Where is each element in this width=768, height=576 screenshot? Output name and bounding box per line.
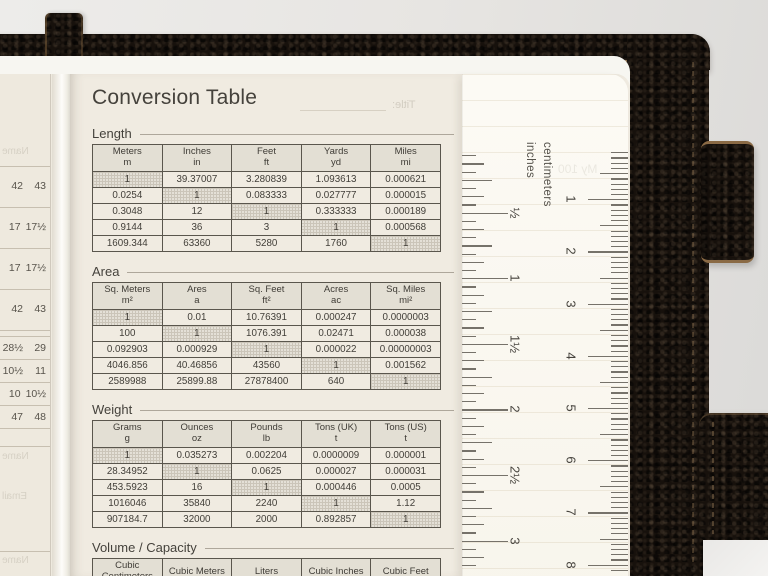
ruler-cm-tick xyxy=(611,377,628,378)
ruler-cm-tick xyxy=(611,450,628,451)
conversion-table: MetersmInchesinFeetftYardsydMilesmi139.3… xyxy=(92,144,441,252)
ruler-cm-tick xyxy=(611,392,628,393)
table-cell: 3 xyxy=(232,220,302,236)
table-cell: 1 xyxy=(371,512,441,528)
table-header-row: GramsgOuncesozPoundslbTons (UK)tTons (US… xyxy=(93,421,441,448)
table-cell: 1 xyxy=(93,448,163,464)
table-cell: 1 xyxy=(93,172,163,188)
ruler-cm-tick xyxy=(611,366,628,367)
table-cell: 100 xyxy=(93,326,163,342)
table-cell: 0.892857 xyxy=(301,512,371,528)
ruler-cm-tick xyxy=(588,512,628,513)
table-body: 10.0110.763910.0002470.000000310011076.3… xyxy=(93,310,441,390)
table-row: 1609.34463360528017601 xyxy=(93,236,441,252)
table-cell: 0.3048 xyxy=(93,204,163,220)
cover-right-panel xyxy=(627,34,709,576)
table-cell: 0.0005 xyxy=(371,480,441,496)
table-cell: 1 xyxy=(301,220,371,236)
left-page-size-row: 10½11 xyxy=(0,365,46,377)
ruler-cm-tick xyxy=(611,231,628,232)
ruler-inch-tick xyxy=(462,418,476,419)
table-row: 0.025410.0833330.0277770.000015 xyxy=(93,188,441,204)
ruler-cm-tick xyxy=(611,465,628,466)
column-header: Sq. Feetft² xyxy=(232,283,302,310)
size-value: 11 xyxy=(28,365,46,377)
ruler-cm-tick xyxy=(611,204,628,205)
ruler-inch-tick xyxy=(462,270,476,271)
ruler-cm-number: 3 xyxy=(564,300,579,307)
ruler-cm-tick xyxy=(611,288,628,289)
ruler-inch-number: 1½ xyxy=(508,335,523,353)
ruler-cm-tick xyxy=(611,215,628,216)
ruler-cm-tick xyxy=(611,293,628,294)
table-cell: 2589988 xyxy=(93,374,163,390)
left-page-rule-line xyxy=(0,446,50,447)
column-unit: g xyxy=(93,434,162,445)
table-cell: 0.000621 xyxy=(371,172,441,188)
ruler-inch-tick xyxy=(462,459,484,460)
table-row: 0.0929030.00092910.0000220.00000003 xyxy=(93,342,441,358)
left-page-size-row: 4243 xyxy=(0,180,46,192)
left-page-bleed-text: Name xyxy=(2,555,58,566)
conversion-table: GramsgOuncesozPoundslbTons (UK)tTons (US… xyxy=(92,420,441,528)
table-cell: 0.035273 xyxy=(162,448,232,464)
table-cell: 1 xyxy=(162,188,232,204)
ruler-inch-tick xyxy=(462,475,508,476)
table-cell: 1 xyxy=(371,236,441,252)
table-cell: 1 xyxy=(232,480,302,496)
column-header: Gramsg xyxy=(93,421,163,448)
left-page-rule-line xyxy=(0,359,50,360)
table-cell: 0.000015 xyxy=(371,188,441,204)
table-row: 101604635840224011.12 xyxy=(93,496,441,512)
table-cell: 1760 xyxy=(301,236,371,252)
ruler-cm-tick xyxy=(611,246,628,247)
ruler-inch-tick xyxy=(462,327,484,328)
table-cell: 1 xyxy=(301,496,371,512)
ruler-cm-tick xyxy=(611,554,628,555)
ruler-centimeters-label: centimeters xyxy=(541,142,553,207)
ruler-cm-tick xyxy=(611,570,628,571)
table-cell: 0.000189 xyxy=(371,204,441,220)
ruler-inch-tick xyxy=(462,524,484,525)
ruler-cm-tick xyxy=(611,163,628,164)
ruler-cm-tick xyxy=(611,236,628,237)
ruler-cm-tick xyxy=(611,398,628,399)
left-page-size-row: 4243 xyxy=(0,303,46,315)
table-cell: 28.34952 xyxy=(93,464,163,480)
table-cell: 1 xyxy=(301,358,371,374)
ruler-cm-tick xyxy=(611,272,628,273)
column-unit: t xyxy=(302,434,371,445)
table-cell: 0.0625 xyxy=(232,464,302,480)
ruler-inch-tick xyxy=(462,237,476,238)
size-value: 10½ xyxy=(3,365,23,377)
column-header: Ouncesoz xyxy=(162,421,232,448)
ruler-inch-tick xyxy=(462,483,476,484)
size-value: 17½ xyxy=(26,221,46,233)
ruler-cm-tick xyxy=(611,267,628,268)
table-row: 10.0352730.0022040.00000090.000001 xyxy=(93,448,441,464)
ruler-cm-tick xyxy=(611,194,628,195)
table-row: 4046.85640.468564356010.001562 xyxy=(93,358,441,374)
column-unit: ac xyxy=(302,296,371,307)
strap-stitching xyxy=(712,422,714,534)
column-header: Cubic Centimeters xyxy=(93,559,163,576)
table-cell: 1 xyxy=(93,310,163,326)
ruler-cm-tick xyxy=(611,418,628,419)
table-cell: 32000 xyxy=(162,512,232,528)
column-header: Acresac xyxy=(301,283,371,310)
ruler-inches-label: inches xyxy=(524,142,536,178)
column-header: Yardsyd xyxy=(301,145,371,172)
table-header-row: Cubic CentimetersCubic MetersLitersCubic… xyxy=(93,559,441,576)
section-length: LengthMetersmInchesinFeetftYardsydMilesm… xyxy=(92,126,454,252)
left-page-bleed-text: Name xyxy=(2,146,58,157)
table-row: 907184.73200020000.8928571 xyxy=(93,512,441,528)
ruler-cm-tick xyxy=(611,549,628,550)
table-cell: 4046.856 xyxy=(93,358,163,374)
table-row: 28.3495210.06250.0000270.000031 xyxy=(93,464,441,480)
section-header: Area xyxy=(92,264,454,279)
ruler-cm-tick xyxy=(611,559,628,560)
table-cell: 453.5923 xyxy=(93,480,163,496)
ruler-cm-tick xyxy=(611,309,628,310)
size-value: 42 xyxy=(3,180,23,192)
table-cell: 0.000247 xyxy=(301,310,371,326)
table-cell: 640 xyxy=(301,374,371,390)
table-cell: 10.76391 xyxy=(232,310,302,326)
ruler-inch-tick xyxy=(462,434,476,435)
conversion-table: Sq. Metersm²AresaSq. Feetft²AcresacSq. M… xyxy=(92,282,441,390)
ruler-cm-tick xyxy=(588,356,628,357)
column-unit: m xyxy=(93,158,162,169)
ruler-inch-tick xyxy=(462,204,476,205)
column-header: Feetft xyxy=(232,145,302,172)
ruler-cm-tick xyxy=(611,220,628,221)
column-header: Metersm xyxy=(93,145,163,172)
left-page-bleed-text: Email xyxy=(2,491,58,502)
left-page-size-row: 4748 xyxy=(0,411,46,423)
cover-strap-lower xyxy=(699,413,768,543)
ruler-cm-tick xyxy=(611,518,628,519)
table-cell: 36 xyxy=(162,220,232,236)
ruler-cm-number: 7 xyxy=(564,509,579,516)
column-name: Cubic Meters xyxy=(163,567,232,576)
ruler-cm-tick xyxy=(611,455,628,456)
ruler-cm-tick xyxy=(611,184,628,185)
size-value: 17½ xyxy=(26,262,46,274)
ruler-inch-number: 2 xyxy=(508,406,523,413)
bleed-page-heading: My 100 xyxy=(558,162,597,176)
ruler-inch-tick xyxy=(462,377,492,378)
ruler-inch-tick xyxy=(462,565,476,566)
ruler-inch-tick xyxy=(462,180,492,181)
ruler-inch-tick xyxy=(462,368,476,369)
left-page-rule-line xyxy=(0,330,50,331)
ruler-cm-tick xyxy=(611,210,628,211)
table-cell: 0.000031 xyxy=(371,464,441,480)
ruler-cm-tick xyxy=(611,471,628,472)
table-cell: 0.000022 xyxy=(301,342,371,358)
ruler-inch-tick xyxy=(462,516,476,517)
table-cell: 1 xyxy=(232,342,302,358)
column-unit: oz xyxy=(163,434,232,445)
size-value: 10½ xyxy=(26,388,46,400)
left-page-rule-line xyxy=(0,428,50,429)
ruler-inch-tick xyxy=(462,188,476,189)
left-page-bleed-text: Name xyxy=(2,451,58,462)
table-cell: 5280 xyxy=(232,236,302,252)
section-weight: WeightGramsgOuncesozPoundslbTons (UK)tTo… xyxy=(92,402,454,528)
ruler-inch-tick xyxy=(462,491,484,492)
table-cell: 0.0000003 xyxy=(371,310,441,326)
ruler-inch-number: 3 xyxy=(508,537,523,544)
ruler-cm-tick xyxy=(611,507,628,508)
table-row: 0.914436310.000568 xyxy=(93,220,441,236)
left-page-rule-line xyxy=(0,289,50,290)
sections: LengthMetersmInchesinFeetftYardsydMilesm… xyxy=(92,126,454,576)
ruler-cm-tick xyxy=(611,178,628,179)
ruler-inch-tick xyxy=(462,163,484,164)
ruler-cm-tick xyxy=(588,408,628,409)
table-cell: 0.000446 xyxy=(301,480,371,496)
section-rule-line xyxy=(127,272,454,273)
ruler-cm-tick xyxy=(600,225,628,226)
ruler-cm-tick xyxy=(611,340,628,341)
table-cell: 0.092903 xyxy=(93,342,163,358)
column-header: Sq. Metersm² xyxy=(93,283,163,310)
ruler-inch-tick xyxy=(462,442,492,443)
section-header: Weight xyxy=(92,402,454,417)
column-unit: yd xyxy=(302,158,371,169)
table-cell: 0.000929 xyxy=(162,342,232,358)
column-unit: mi² xyxy=(371,296,440,307)
section-rule-line xyxy=(140,410,454,411)
background-corner xyxy=(703,540,768,576)
ruler-cm-tick xyxy=(600,173,628,174)
column-header: Inchesin xyxy=(162,145,232,172)
ruler-cm-tick xyxy=(611,424,628,425)
left-page-size-row: 28½29 xyxy=(0,342,46,354)
ruler-cm-tick xyxy=(611,241,628,242)
pen-loop xyxy=(701,141,754,263)
left-page-rule-line xyxy=(0,405,50,406)
ruler-cm-tick xyxy=(600,434,628,435)
ruler-cm-number: 8 xyxy=(564,561,579,568)
size-value: 10 xyxy=(1,388,21,400)
left-page-rule-line xyxy=(0,382,50,383)
ruler-cm-tick xyxy=(588,565,628,566)
section-rule-line xyxy=(205,548,454,549)
table-cell: 0.9144 xyxy=(93,220,163,236)
table-row: 139.370073.2808391.0936130.000621 xyxy=(93,172,441,188)
ruler-inch-tick xyxy=(462,401,476,402)
table-row: 10.0110.763910.0002470.0000003 xyxy=(93,310,441,326)
ruler-inch-tick xyxy=(462,426,484,427)
ruler-inch-tick xyxy=(462,229,484,230)
column-header: Sq. Milesmi² xyxy=(371,283,441,310)
ruler-cm-tick xyxy=(600,278,628,279)
bleed-title-rule xyxy=(300,110,386,111)
ruler-cm-number: 6 xyxy=(564,457,579,464)
table-body: 139.370073.2808391.0936130.0006210.02541… xyxy=(93,172,441,252)
ruler-cm-number: 1 xyxy=(564,196,579,203)
ruler-cm-tick xyxy=(611,476,628,477)
table-head: Cubic CentimetersCubic MetersLitersCubic… xyxy=(93,559,441,576)
ruler-inch-number: 1 xyxy=(508,275,523,282)
ruler-inch-tick xyxy=(462,262,484,263)
cover-stitching-right xyxy=(692,62,694,562)
ruler-inch-tick xyxy=(462,541,508,542)
table-cell: 0.000038 xyxy=(371,326,441,342)
ruler-cm-tick xyxy=(611,528,628,529)
left-page-rule-line xyxy=(0,336,50,337)
section-label: Area xyxy=(92,264,119,279)
table-cell: 16 xyxy=(162,480,232,496)
table-cell: 0.001562 xyxy=(371,358,441,374)
ruler-cm-tick xyxy=(611,413,628,414)
ruler-cm-tick xyxy=(611,387,628,388)
ruler-cm-tick xyxy=(611,335,628,336)
ruler-inch-tick xyxy=(462,286,476,287)
ruler-inch-tick xyxy=(462,508,492,509)
ruler-cm-tick xyxy=(611,502,628,503)
table-cell: 1 xyxy=(162,464,232,480)
table-cell: 27878400 xyxy=(232,374,302,390)
ruler-inch-tick xyxy=(462,549,476,550)
table-cell: 0.0000009 xyxy=(301,448,371,464)
table-cell: 1.12 xyxy=(371,496,441,512)
ruler-cm-tick xyxy=(611,257,628,258)
ruler-inch-tick xyxy=(462,303,476,304)
table-row: 10011076.3910.024710.000038 xyxy=(93,326,441,342)
table-cell: 43560 xyxy=(232,358,302,374)
table-cell: 2240 xyxy=(232,496,302,512)
table-cell: 1 xyxy=(162,326,232,342)
ruler-cm-tick xyxy=(611,361,628,362)
ruler-inch-tick xyxy=(462,557,484,558)
section-volume-capacity: Volume / CapacityCubic CentimetersCubic … xyxy=(92,540,454,576)
ruler-inch-tick xyxy=(462,336,476,337)
size-value: 17 xyxy=(1,262,21,274)
table-row: 258998825899.88278784006401 xyxy=(93,374,441,390)
ruler-inch-tick xyxy=(462,155,476,156)
ruler-cm-tick xyxy=(611,371,628,372)
ruler-inch-tick xyxy=(462,467,476,468)
ruler-cm-tick xyxy=(611,544,628,545)
section-label: Weight xyxy=(92,402,132,417)
ruler-inch-tick xyxy=(462,344,508,345)
column-name: Cubic Inches xyxy=(302,567,371,576)
column-unit: lb xyxy=(232,434,301,445)
ruler-inch-tick xyxy=(462,254,476,255)
ruler-inch-tick xyxy=(462,278,508,279)
ruler-inch-tick xyxy=(462,409,508,410)
table-cell: 0.0254 xyxy=(93,188,163,204)
table-cell: 1076.391 xyxy=(232,326,302,342)
table-cell: 3.280839 xyxy=(232,172,302,188)
section-header: Volume / Capacity xyxy=(92,540,454,555)
column-header: Cubic Inches xyxy=(301,559,371,576)
table-cell: 25899.88 xyxy=(162,374,232,390)
table-cell: 0.002204 xyxy=(232,448,302,464)
left-page-size-row: 1717½ xyxy=(0,221,46,233)
left-page-rule-line xyxy=(0,248,50,249)
size-value: 47 xyxy=(3,411,23,423)
ruler-cm-tick xyxy=(588,304,628,305)
ruler-cm-tick xyxy=(588,460,628,461)
ruler-cm-tick xyxy=(611,403,628,404)
table-cell: 0.02471 xyxy=(301,326,371,342)
size-value: 28½ xyxy=(3,342,23,354)
ruler-cm-tick xyxy=(611,189,628,190)
table-cell: 35840 xyxy=(162,496,232,512)
column-unit: ft xyxy=(232,158,301,169)
table-cell: 0.027777 xyxy=(301,188,371,204)
ruler-cm-tick xyxy=(611,533,628,534)
left-page-rule-line xyxy=(0,207,50,208)
ruler-cm-tick xyxy=(600,486,628,487)
ruler-inch-tick xyxy=(462,213,508,214)
table-cell: 40.46856 xyxy=(162,358,232,374)
table-cell: 1 xyxy=(371,374,441,390)
section-area: AreaSq. Metersm²AresaSq. Feetft²AcresacS… xyxy=(92,264,454,390)
planner-photo: 42431717½1717½424328½2910½111010½4748 Na… xyxy=(0,0,768,576)
column-header: Poundslb xyxy=(232,421,302,448)
ruler-cm-tick xyxy=(611,262,628,263)
ruler-cm-tick xyxy=(611,481,628,482)
ruler: inches centimeters My 100 ½11½22½3123456… xyxy=(462,74,628,576)
table-cell: 0.333333 xyxy=(301,204,371,220)
column-name: Cubic Feet xyxy=(371,567,440,576)
ruler-inch-tick xyxy=(462,352,476,353)
ruler-cm-tick xyxy=(611,324,628,325)
table-row: 0.30481210.3333330.000189 xyxy=(93,204,441,220)
bleed-title-text: Title: xyxy=(392,99,415,111)
ruler-inch-tick xyxy=(462,295,484,296)
table-header-row: MetersmInchesinFeetftYardsydMilesmi xyxy=(93,145,441,172)
ruler-cm-tick xyxy=(611,439,628,440)
column-header: Liters xyxy=(232,559,302,576)
ruler-cm-tick xyxy=(611,168,628,169)
ruler-cm-tick xyxy=(600,382,628,383)
ruler-cm-tick xyxy=(611,319,628,320)
ruler-cm-tick xyxy=(611,157,628,158)
left-page-rule-line xyxy=(0,551,50,552)
table-cell: 2000 xyxy=(232,512,302,528)
size-value: 29 xyxy=(28,342,46,354)
ruler-inch-tick xyxy=(462,196,484,197)
ruler-cm-tick xyxy=(611,492,628,493)
table-cell: 1.093613 xyxy=(301,172,371,188)
column-name: Liters xyxy=(232,567,301,576)
ruler-cm-tick xyxy=(588,199,628,200)
ruler-cm-tick xyxy=(611,429,628,430)
ruler-inch-tick xyxy=(462,450,476,451)
table-body: 10.0352730.0022040.00000090.00000128.349… xyxy=(93,448,441,528)
table-cell: 1609.344 xyxy=(93,236,163,252)
conversion-table: Cubic CentimetersCubic MetersLitersCubic… xyxy=(92,558,441,576)
ruler-cm-tick xyxy=(611,497,628,498)
ruler-inch-tick xyxy=(462,245,492,246)
ruler-cm-number: 5 xyxy=(564,404,579,411)
ruler-inch-tick xyxy=(462,221,476,222)
column-header: Tons (UK)t xyxy=(301,421,371,448)
ruler-cm-tick xyxy=(611,523,628,524)
table-cell: 0.083333 xyxy=(232,188,302,204)
column-unit: m² xyxy=(93,296,162,307)
